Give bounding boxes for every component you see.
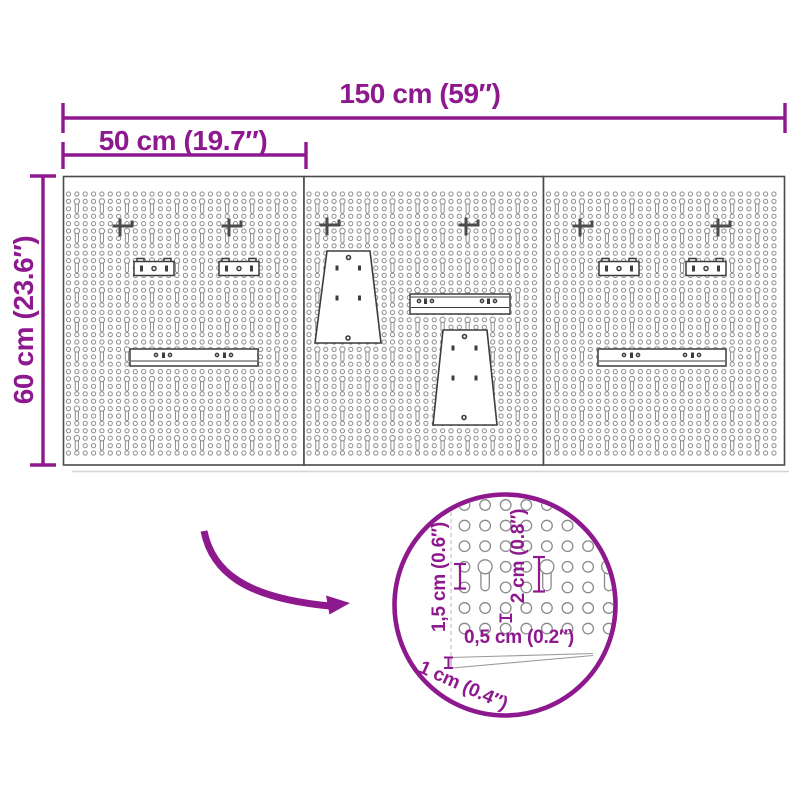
product-dimension-diagram: 150 cm (59″) 50 cm (19.7″) 60 cm (23.6″) bbox=[0, 0, 800, 800]
shelf-bracket bbox=[599, 259, 639, 276]
panel-width-label: 50 cm (19.7″) bbox=[99, 125, 268, 156]
height-label: 60 cm (23.6″) bbox=[8, 236, 39, 405]
shelf-bracket bbox=[134, 259, 174, 276]
mounting-plate bbox=[410, 294, 510, 314]
pegboard bbox=[64, 177, 785, 466]
zoom-arrow-curve bbox=[204, 531, 330, 606]
zoom-arrow-head bbox=[326, 596, 350, 615]
zoom-arrow bbox=[204, 531, 350, 615]
detail-circle: 1,5 cm (0.6″) 2 cm (0.8″) 0,5 cm (0.2″) … bbox=[395, 495, 616, 716]
slot-length-label: 1,5 cm (0.6″) bbox=[429, 522, 450, 632]
leg-support bbox=[433, 330, 497, 425]
total-width-label: 150 cm (59″) bbox=[339, 78, 500, 109]
shelf-bracket bbox=[686, 259, 726, 276]
diagram-canvas: 150 cm (59″) 50 cm (19.7″) 60 cm (23.6″) bbox=[0, 0, 800, 800]
dimension-panel-width: 50 cm (19.7″) bbox=[63, 125, 306, 169]
wall-rail bbox=[598, 349, 726, 366]
shelf-bracket bbox=[219, 259, 259, 276]
leg-support bbox=[315, 251, 381, 343]
wall-rail bbox=[130, 349, 258, 366]
pegboard-panel bbox=[64, 177, 305, 466]
hole-diameter-label: 0,5 cm (0.2″) bbox=[464, 627, 574, 648]
dimension-height: 60 cm (23.6″) bbox=[8, 176, 56, 465]
keyhole-length-label: 2 cm (0.8″) bbox=[508, 509, 529, 604]
